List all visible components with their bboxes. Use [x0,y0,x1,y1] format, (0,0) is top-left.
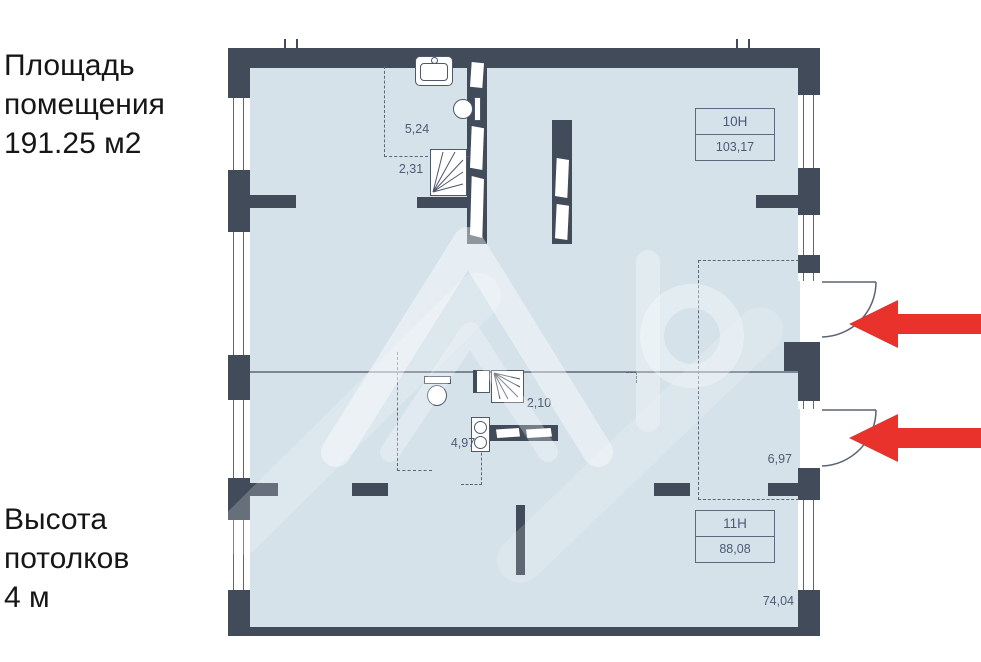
dashed-outline [397,352,432,471]
ceiling-line: потолков [4,539,129,578]
area-line: помещения [4,85,165,124]
toilet-bowl [453,99,473,119]
wall-right [798,255,820,273]
door-leaf [555,204,569,240]
sink-icon [415,56,453,86]
wall-left [228,48,250,98]
wall-right [798,48,820,95]
wall-interior [467,48,487,244]
wall-right [798,342,820,401]
window [228,232,250,355]
door-leaf [496,428,520,438]
sink-tap [431,57,438,64]
toilet-tank [424,376,451,384]
door-leaf [555,158,569,198]
door-frame [798,273,820,281]
sink-basin [474,421,487,434]
unit-id: 11Н [696,511,774,536]
unit-box-11n: 11Н 88,08 [695,510,775,563]
door-leaf [526,428,552,438]
area-line: 191.25 м2 [4,124,165,163]
dim-label: 2,10 [516,396,562,410]
wall-right [798,168,820,215]
dim-label: 6,97 [736,452,792,466]
toilet-bowl [427,385,447,406]
ceiling-line: 4 м [4,578,129,617]
unit-id: 10Н [696,109,774,134]
ceiling-height-label: Высота потолков 4 м [4,500,129,617]
wall-bottom [228,627,820,636]
entrance-door-swing [822,282,876,466]
entrance-arrow [849,414,981,462]
shower-door [473,370,490,393]
floorplan-listing-image: Площадь помещения 191.25 м2 Высота потол… [0,0,981,662]
dim-label: 4,97 [440,436,486,450]
door-leaf [470,176,484,238]
wall-stub [516,505,525,575]
window [798,215,820,255]
toilet-tank [474,97,481,121]
wall-left [228,590,250,636]
wall-interior [417,197,467,208]
window [798,95,820,168]
ceiling-line: Высота [4,500,129,539]
wall-stub [352,483,388,496]
wall-interior [488,425,558,441]
window [228,98,250,170]
wall-interior [552,120,572,244]
shower-icon [430,149,467,196]
area-line: Площадь [4,46,165,85]
door-leaf [470,62,484,88]
window [228,520,250,590]
wall-left [228,355,250,400]
wall-left [228,478,250,520]
wall-right [798,590,820,636]
entrance-arrow [849,300,981,348]
dim-label: 5,24 [394,122,440,136]
vent-tick [284,39,298,48]
unit-area: 103,17 [696,134,774,160]
wall-stub [250,195,296,208]
wall-right [798,468,820,500]
unit-area: 88,08 [696,536,774,562]
wall-top [228,48,820,68]
wall-stub [756,195,798,208]
wall-stub [654,483,690,496]
toilet-icon [453,97,483,121]
vent-tick [736,39,750,48]
sink-basin [420,63,448,81]
shower-fan-lines [431,150,465,194]
dim-label: 74,04 [736,594,794,608]
area-label: Площадь помещения 191.25 м2 [4,46,165,163]
dashed-mark [626,372,637,383]
floorplan: 5,24 2,31 2,10 4,97 6,97 74,04 10Н 103,1… [228,48,820,636]
wall-left [228,170,250,232]
unit-box-10n: 10Н 103,17 [695,108,775,161]
door-leaf [470,126,484,170]
dim-label: 2,31 [388,162,434,176]
wall-stub [250,483,278,496]
window [798,500,820,590]
toilet-icon [424,376,451,406]
door-frame [798,401,820,409]
window [228,400,250,478]
